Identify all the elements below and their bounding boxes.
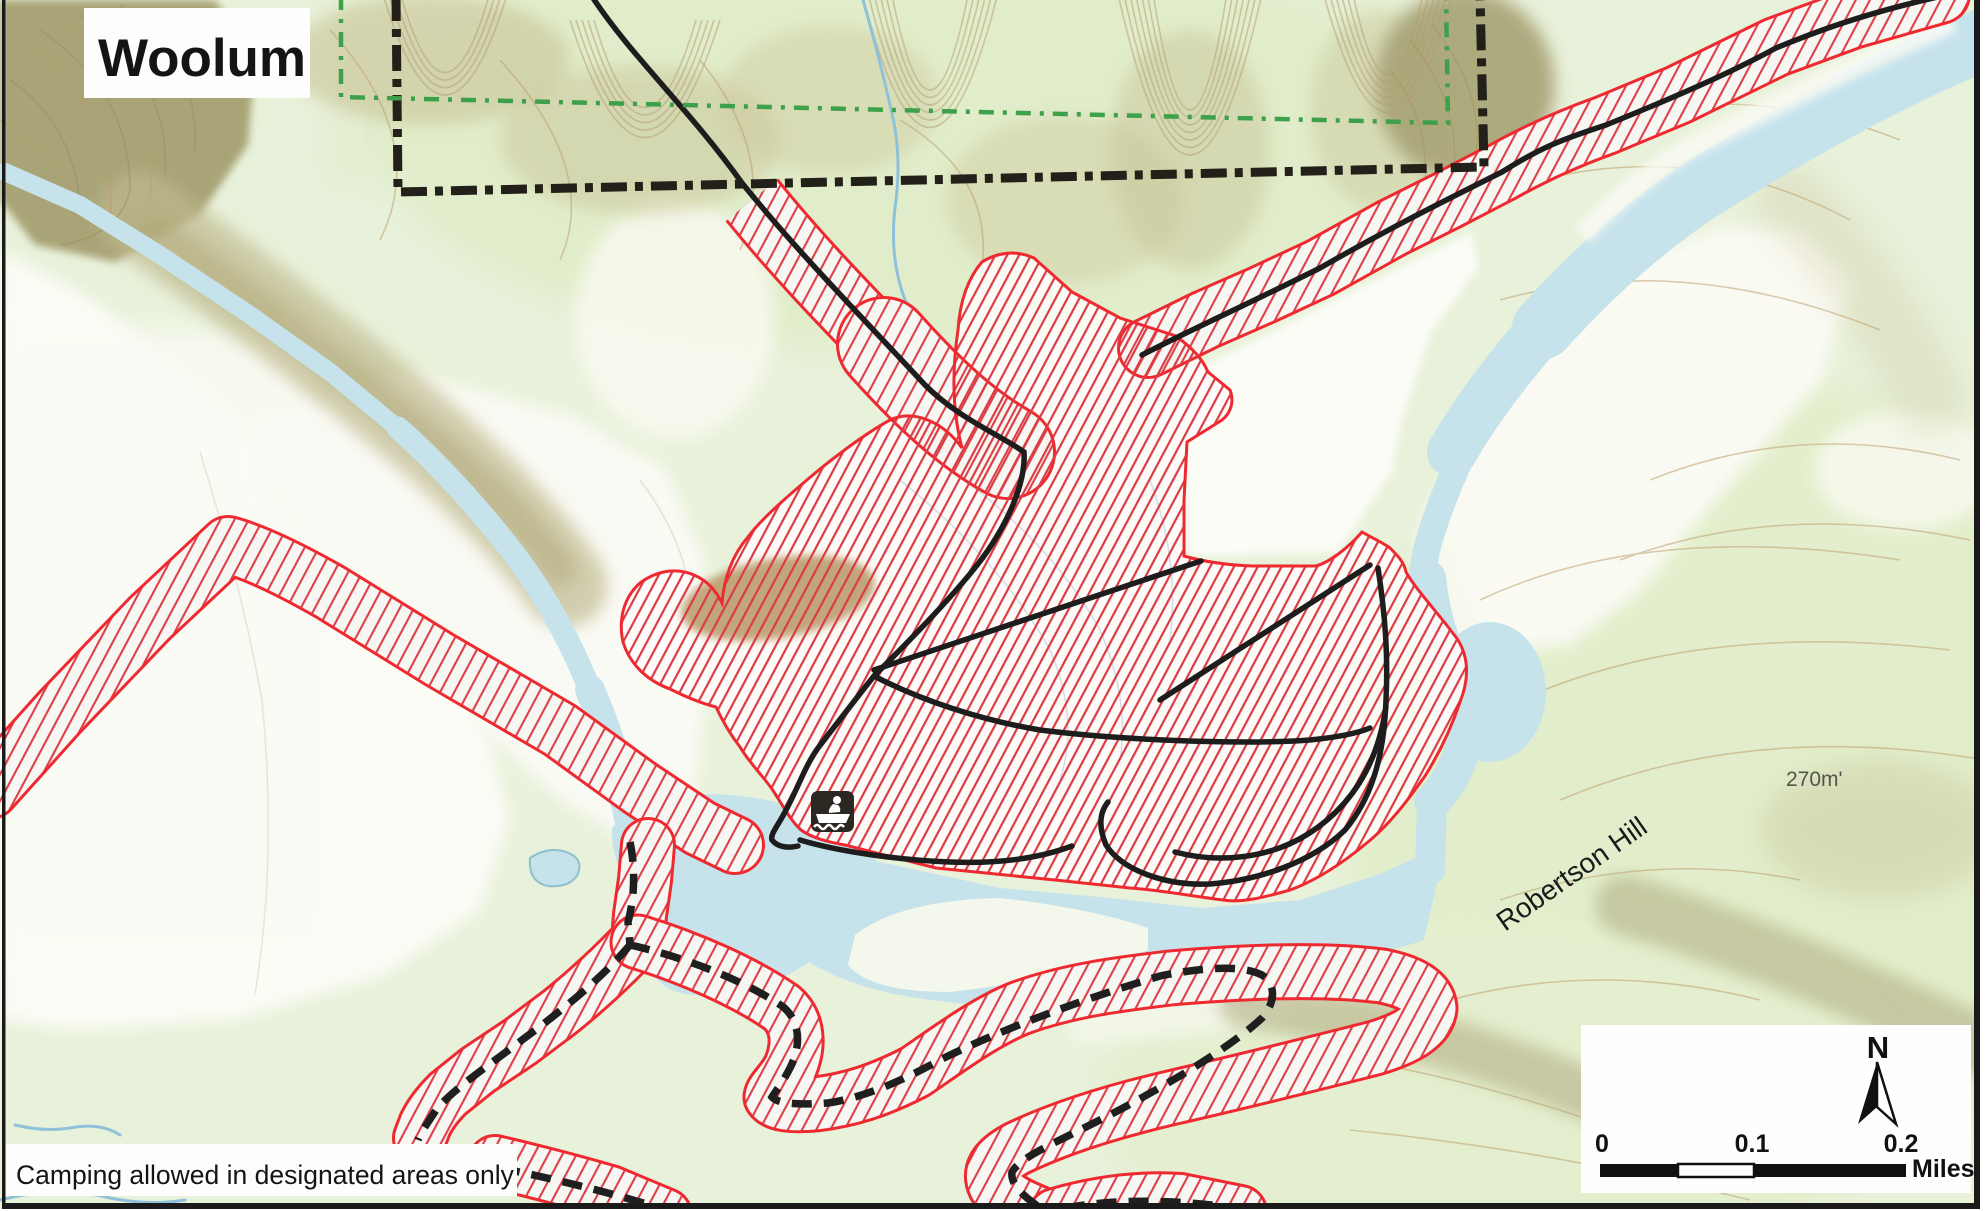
svg-text:Woolum: Woolum [98,29,306,88]
svg-text:0.1: 0.1 [1735,1130,1770,1158]
svg-text:270m': 270m' [1786,768,1843,791]
svg-text:Miles: Miles [1912,1155,1975,1183]
svg-text:Camping allowed in designated: Camping allowed in designated areas only [16,1160,515,1190]
svg-text:0: 0 [1595,1130,1609,1158]
svg-text:0.2: 0.2 [1884,1130,1919,1158]
svg-text:N: N [1867,1030,1889,1065]
